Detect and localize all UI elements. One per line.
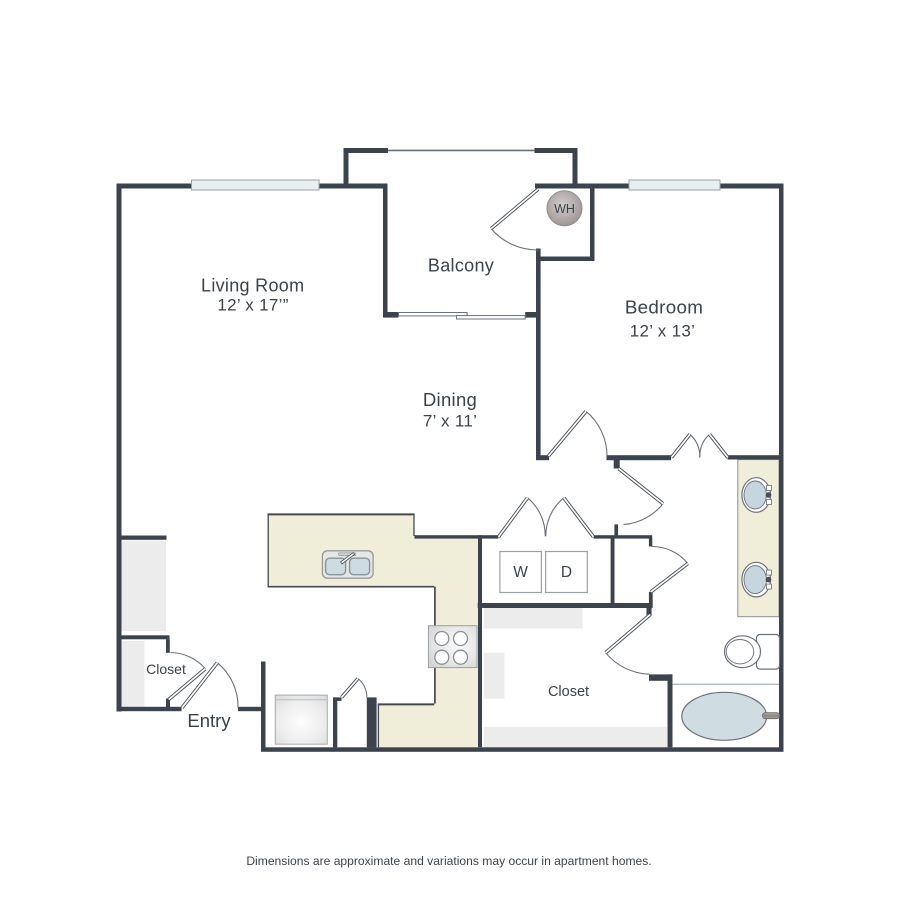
svg-text:7’ x 11’: 7’ x 11’ <box>423 412 477 431</box>
svg-text:Balcony: Balcony <box>428 256 494 276</box>
svg-text:W: W <box>513 564 528 581</box>
svg-text:Closet: Closet <box>548 684 589 700</box>
svg-text:WH: WH <box>554 202 575 216</box>
svg-text:12’ x 17’”: 12’ x 17’” <box>217 296 288 315</box>
svg-text:Entry: Entry <box>187 710 231 731</box>
svg-text:Closet: Closet <box>146 661 186 677</box>
svg-text:Dimensions are approximate and: Dimensions are approximate and variation… <box>246 854 651 868</box>
svg-text:D: D <box>561 564 572 581</box>
svg-text:Dining: Dining <box>423 389 477 410</box>
svg-text:Bedroom: Bedroom <box>625 297 703 318</box>
svg-text:Living Room: Living Room <box>201 275 304 295</box>
svg-text:12’ x 13’: 12’ x 13’ <box>630 322 695 341</box>
